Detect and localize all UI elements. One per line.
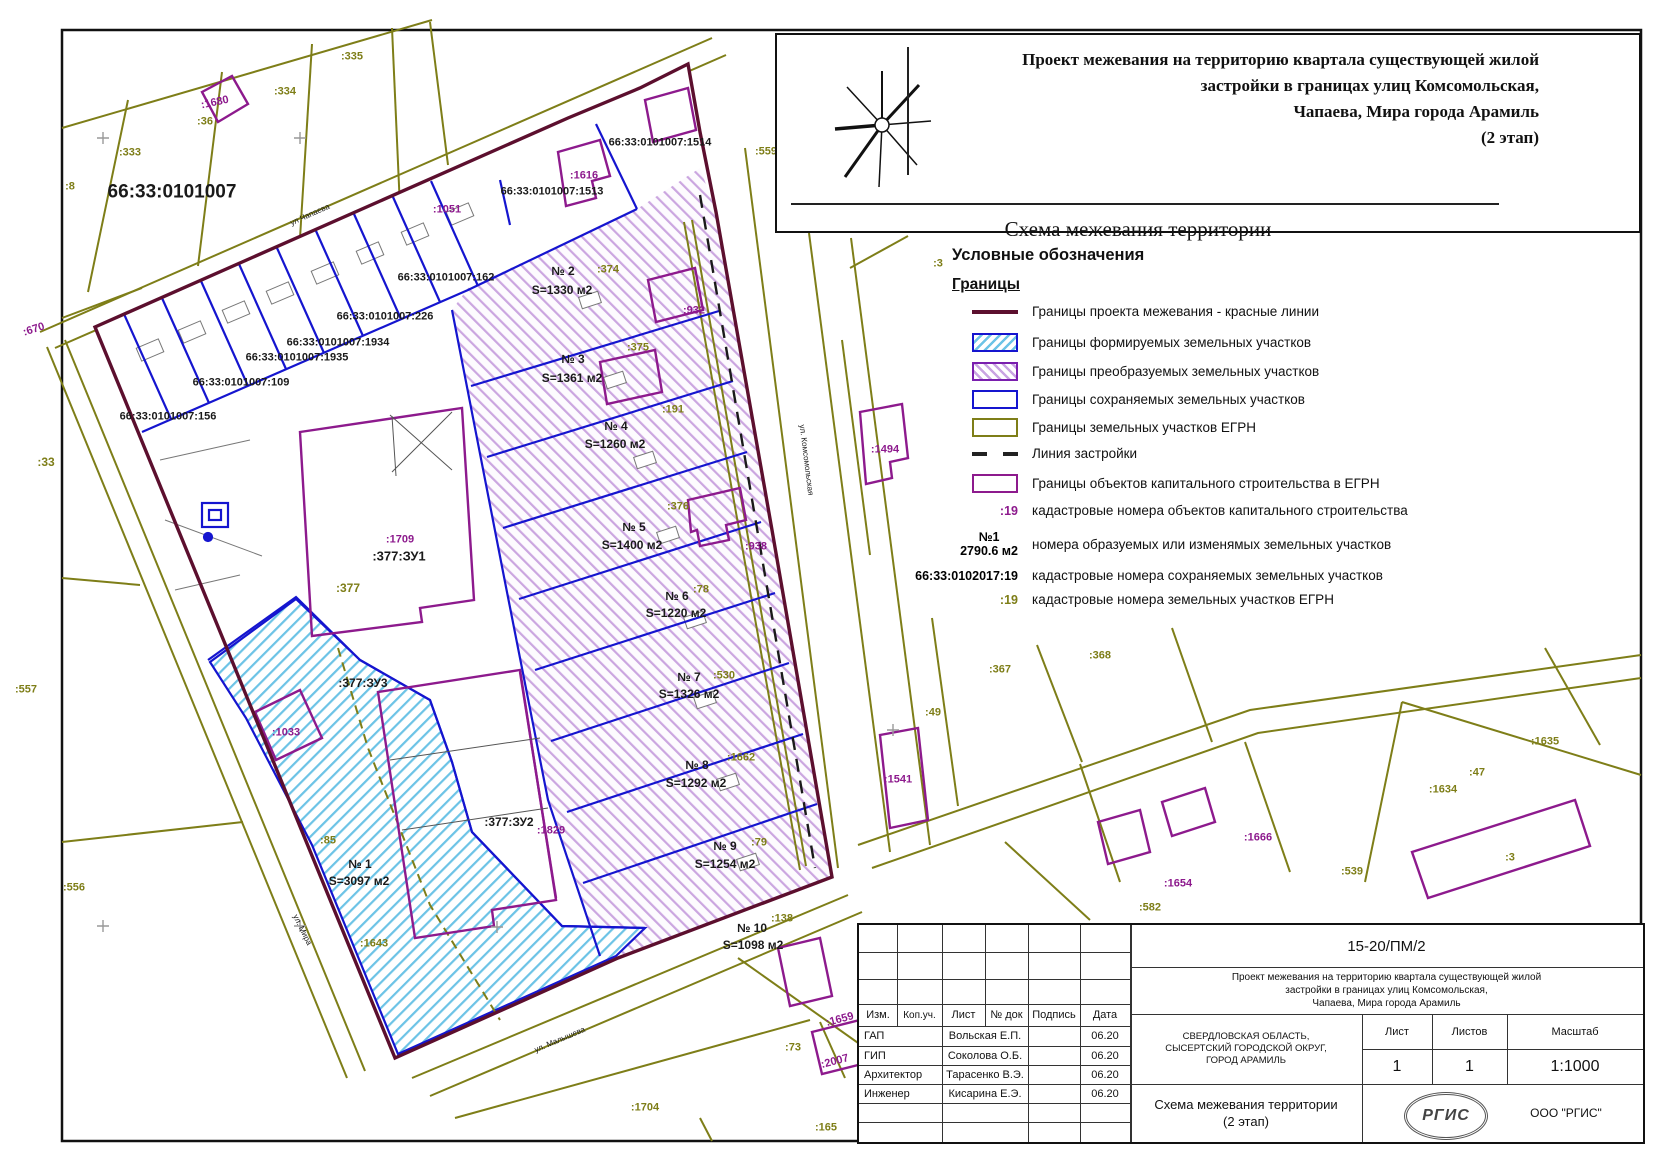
map-label: :377 [336, 582, 360, 594]
stamp-date: 06.20 [1080, 1046, 1130, 1065]
map-label: :1541 [884, 775, 912, 786]
map-label: :932 [683, 306, 705, 317]
map-label: 66:33:0101007:156 [120, 412, 217, 423]
legend-item-oks-numbers: :19 кадастровые номера объектов капиталь… [940, 503, 1408, 518]
red-line-swatch [972, 310, 1018, 314]
map-label: 66:33:0101007:1513 [501, 187, 604, 198]
map-label: 66:33:0101007:162 [398, 273, 495, 284]
map-label: :374 [597, 265, 619, 276]
legend-item-retained: Границы сохраняемых земельных участков [940, 390, 1305, 409]
stamp-role: ГАП [859, 1026, 947, 1046]
stamp-col-kopuch: Коп.уч. [897, 1004, 942, 1026]
map-label: 66:33:0101007:1514 [609, 138, 712, 149]
map-label: :334 [274, 87, 296, 98]
map-label: :3 [1505, 853, 1515, 864]
legend-item-transformed: Границы преобразуемых земельных участков [940, 362, 1319, 381]
stamp-name: Тарасенко В.Э. [942, 1065, 1028, 1084]
survey-sheet: 66:33:010100766:33:0101007:151466:33:010… [0, 0, 1654, 1169]
map-label: № 5 [622, 521, 645, 533]
stamp-doc-number: 15-20/ПМ/2 [1130, 925, 1643, 967]
stamp-col-izm: Изм. [859, 1004, 897, 1026]
map-label: S=1098 м2 [723, 939, 784, 951]
map-label: :8 [65, 182, 75, 193]
map-label: :333 [119, 148, 141, 159]
stamp-col-data: Дата [1080, 1004, 1130, 1026]
stamp-sheets-label: Листов [1432, 1014, 1507, 1049]
blue-hatch-swatch [972, 333, 1018, 352]
map-label: :138 [771, 914, 793, 925]
stamp-date: 06.20 [1080, 1084, 1130, 1103]
legend-item-oks: Границы объектов капитального строительс… [940, 474, 1380, 493]
project-title-line1: Проект межевания на территорию квартала … [927, 47, 1539, 73]
map-label: 66:33:0101007 [108, 183, 237, 202]
map-label: S=1330 м2 [532, 284, 593, 296]
map-label: :85 [320, 836, 336, 847]
map-label: :1616 [570, 171, 598, 182]
map-label: :376 [667, 502, 689, 513]
map-label: :375 [627, 343, 649, 354]
map-label: :539 [1341, 867, 1363, 878]
map-label: S=1260 м2 [585, 438, 646, 450]
map-label: № 3 [561, 353, 584, 365]
legend-heading: Условные обозначения [952, 246, 1144, 265]
map-label: :36 [197, 117, 213, 128]
stamp-sheet-value: 1 [1362, 1049, 1432, 1084]
map-label: :165 [815, 1123, 837, 1134]
company-name: ООО "РГИС" [1489, 1084, 1643, 1142]
map-label: S=1326 м2 [659, 688, 720, 700]
map-label: :1033 [272, 728, 300, 739]
map-label: S=1292 м2 [666, 777, 727, 789]
map-label: 66:33:0101007:226 [337, 312, 434, 323]
stamp-scale-value: 1:1000 [1507, 1049, 1643, 1084]
olive-rect-swatch [972, 418, 1018, 437]
map-label: :582 [1139, 903, 1161, 914]
stamp-role: ГИП [859, 1046, 947, 1065]
legend-item-new-parcel-numbers: №1 2790.6 м2 номера образуемых или измен… [940, 530, 1391, 558]
map-label: :33 [37, 456, 54, 468]
map-label: :367 [989, 665, 1011, 676]
map-label: :47 [1469, 768, 1485, 779]
map-label: :1829 [537, 826, 565, 837]
map-label: :938 [745, 542, 767, 553]
map-label: :49 [925, 708, 941, 719]
legend-item-formed: Границы формируемых земельных участков [940, 333, 1311, 352]
legend-item-building-line: Линия застройки [940, 446, 1137, 461]
stamp-scale-label: Масштаб [1507, 1014, 1643, 1049]
map-label: :530 [713, 671, 735, 682]
map-label: № 9 [713, 840, 736, 852]
stamp-col-podpis: Подпись [1028, 1004, 1080, 1026]
legend-item-egrn-numbers: :19 кадастровые номера земельных участко… [940, 592, 1334, 607]
map-label: S=1361 м2 [542, 372, 603, 384]
dash-line-swatch [972, 452, 1018, 456]
stamp-role: Архитектор [859, 1065, 947, 1084]
map-label: № 4 [604, 420, 627, 432]
stamp-date: 06.20 [1080, 1026, 1130, 1046]
map-label: S=1400 м2 [602, 539, 663, 551]
map-label: :191 [662, 405, 684, 416]
map-label: :1662 [727, 753, 755, 764]
project-title: Проект межевания на территорию квартала … [927, 47, 1539, 151]
map-label: 66:33:0101007:109 [193, 378, 290, 389]
title-divider-vertical [907, 47, 909, 175]
map-label: № 8 [685, 759, 708, 771]
stamp-name: Кисарина Е.Э. [942, 1084, 1028, 1103]
stamp-bottom-title: Схема межевания территории (2 этап) [1130, 1084, 1362, 1142]
legend-item-retained-numbers: 66:33:0102017:19 кадастровые номера сохр… [940, 568, 1383, 583]
title-divider-horizontal [791, 203, 1499, 205]
map-label: № 2 [551, 265, 574, 277]
project-title-line2: застройки в границах улиц Комсомольская, [927, 73, 1539, 99]
rgis-logo: РГИС [1404, 1092, 1488, 1140]
purple-hatch-swatch [972, 362, 1018, 381]
map-label: :79 [751, 838, 767, 849]
project-title-line4: (2 этап) [927, 125, 1539, 151]
map-label: :78 [693, 585, 709, 596]
title-box: Проект межевания на территорию квартала … [775, 33, 1641, 233]
map-label: :557 [15, 685, 37, 696]
stamp-name: Вольская Е.П. [942, 1026, 1028, 1046]
map-label: :1666 [1244, 833, 1272, 844]
map-label: 66:33:0101007:1934 [287, 338, 390, 349]
map-label: :335 [341, 52, 363, 63]
map-label: :1634 [1429, 785, 1457, 796]
map-label: :73 [785, 1043, 801, 1054]
map-label: № 10 [737, 922, 767, 934]
map-label: :556 [63, 883, 85, 894]
map-label: :1051 [433, 205, 461, 216]
project-title-line3: Чапаева, Мира города Арамиль [927, 99, 1539, 125]
map-label: :377:ЗУ1 [372, 550, 425, 563]
map-label: :368 [1089, 651, 1111, 662]
stamp-name: Соколова О.Б. [942, 1046, 1028, 1065]
map-label: S=1220 м2 [646, 607, 707, 619]
map-label: № 7 [677, 671, 700, 683]
blue-rect-swatch [972, 390, 1018, 409]
stamp-location: СВЕРДЛОВСКАЯ ОБЛАСТЬ, СЫСЕРТСКИЙ ГОРОДСК… [1130, 1014, 1362, 1084]
map-label: :1494 [871, 445, 899, 456]
map-label: S=3097 м2 [329, 875, 390, 887]
stamp-project-description: Проект межевания на территорию квартала … [1130, 967, 1643, 1014]
map-label: :559 [755, 147, 777, 158]
stamp-col-list: Лист [942, 1004, 985, 1026]
stamp-title-block: Изм. Коп.уч. Лист № док Подпись Дата ГАП… [857, 923, 1645, 1144]
stamp-role: Инженер [859, 1084, 947, 1103]
map-label: :1709 [386, 535, 414, 546]
stamp-col-ndok: № док [985, 1004, 1028, 1026]
legend: Условные обозначения Границы Границы про… [940, 238, 1595, 630]
legend-item-egrn: Границы земельных участков ЕГРН [940, 418, 1256, 437]
map-label: :1643 [360, 939, 388, 950]
map-label: :1704 [631, 1103, 659, 1114]
map-label: № 1 [348, 858, 371, 870]
map-label: :1654 [1164, 879, 1192, 890]
purple-rect-swatch [972, 474, 1018, 493]
map-label: :1635 [1531, 737, 1559, 748]
stamp-sheets-value: 1 [1432, 1049, 1507, 1084]
map-label: :377:ЗУ3 [338, 677, 387, 689]
map-label: № 6 [665, 590, 688, 602]
legend-subheading: Границы [952, 276, 1020, 294]
map-label: S=1254 м2 [695, 858, 756, 870]
stamp-date: 06.20 [1080, 1065, 1130, 1084]
stamp-sheet-label: Лист [1362, 1014, 1432, 1049]
map-label: 66:33:0101007:1935 [246, 353, 349, 364]
legend-item-red-lines: Границы проекта межевания - красные лини… [940, 304, 1319, 319]
map-label: :377:ЗУ2 [484, 816, 533, 828]
